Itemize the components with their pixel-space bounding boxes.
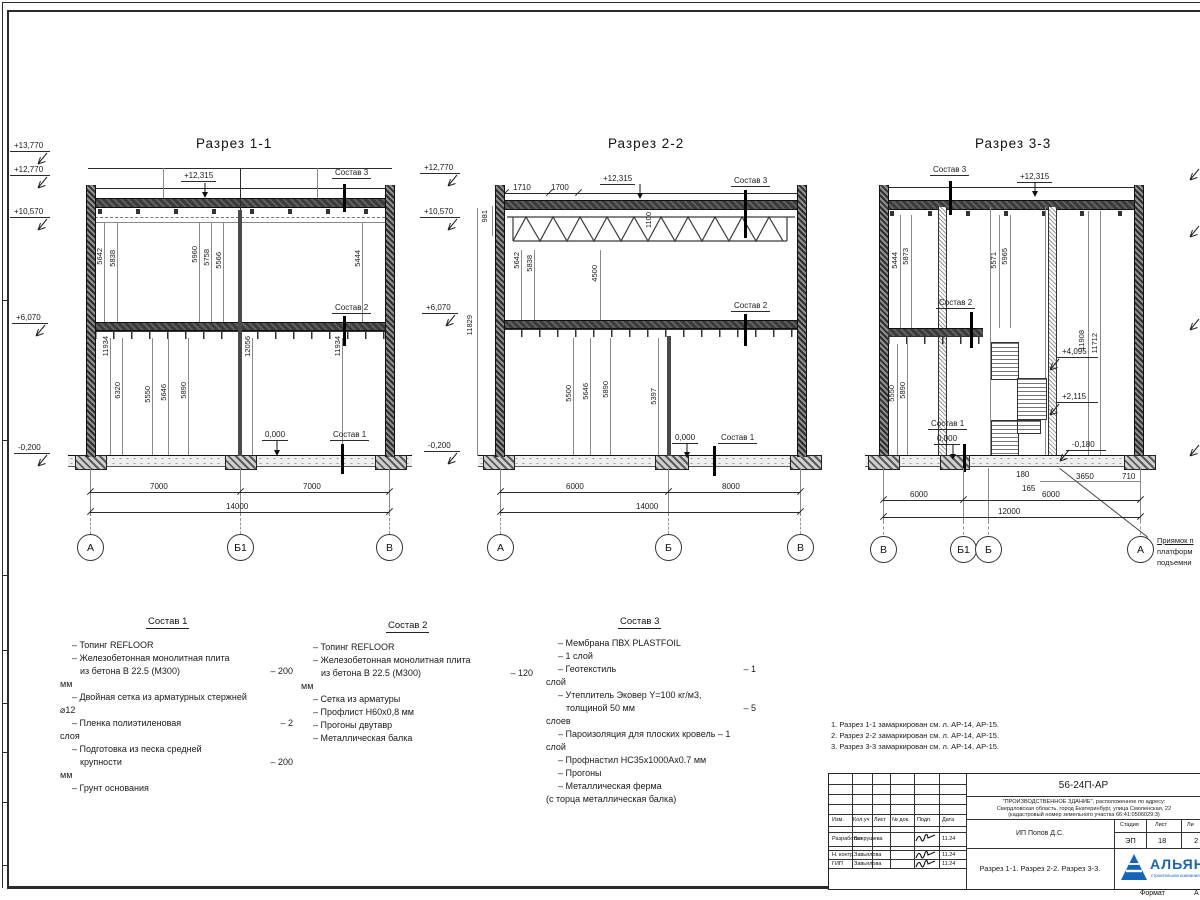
binding-tick [2, 752, 8, 753]
sostav3-callout: Состав 3 [332, 168, 371, 179]
down-arrow-icon [635, 184, 645, 200]
item-text: слой [546, 742, 566, 755]
sostav1-list: – Топинг REFLOOR – Железобетонная моноли… [60, 640, 293, 796]
footing [868, 455, 900, 470]
binding-tick [2, 703, 8, 704]
item-value: – 200 [270, 757, 293, 770]
dim-label: 5444 [890, 252, 899, 269]
ext-line [1140, 468, 1141, 521]
ext-line [988, 468, 989, 521]
item-text: – Железобетонная монолитная плита [301, 655, 471, 668]
dim-label: 1100 [644, 212, 653, 228]
grid-axis-line [963, 521, 964, 535]
dim-label: 5646 [581, 383, 590, 400]
dim-label: 14000 [226, 502, 248, 511]
level-mark: +4,095 [1062, 347, 1087, 356]
sostav3-tick [343, 184, 346, 212]
item-text: крупности [60, 757, 122, 770]
tb-row-date: 11.24 [942, 861, 955, 867]
binding-tick [2, 802, 8, 803]
dim-line [117, 222, 118, 322]
pit-note-line: подъемни [1157, 558, 1192, 567]
down-arrow-icon [272, 441, 282, 457]
dim-label: 6000 [566, 482, 584, 491]
sostav3-callout: Состав 3 [731, 176, 770, 187]
elevation-arrow-icon [444, 174, 459, 188]
middle-column [238, 210, 242, 456]
list-item: мм [60, 679, 293, 692]
dim-label: 3650 [1076, 472, 1094, 481]
note-line: 2. Разрез 2-2 замаркирован см. л. АР-14,… [831, 731, 999, 740]
grid-axis-line [240, 518, 241, 534]
tb-row-line [829, 826, 966, 827]
floor-beams [503, 329, 797, 337]
dim-label: 5571 [989, 252, 998, 269]
grid-axis-line [800, 518, 801, 534]
grid-axis-line [389, 518, 390, 534]
sostav1-tick [713, 446, 716, 476]
dim-label: 5758 [202, 249, 211, 266]
grid-bubble: А [1127, 536, 1154, 563]
list-item: ⌀12 [60, 705, 293, 718]
elevation-label: +12,770 [14, 165, 43, 174]
sostav2-title: Состав 2 [386, 620, 429, 633]
dim-line [534, 250, 535, 320]
elevation-arrow-icon [1056, 449, 1071, 463]
grid-label: В [880, 544, 887, 556]
tb-row-name: Вахрушева [854, 836, 883, 842]
roof-purlins [890, 211, 1133, 216]
item-text: из бетона В 22.5 (М300) [60, 666, 180, 679]
dim-line [610, 338, 611, 455]
grid-bubble: Б [975, 536, 1002, 563]
format-label: Формат [1140, 890, 1165, 897]
tb-row-line [829, 859, 966, 860]
level-mark: +2,115 [1062, 392, 1086, 401]
tb-row-line [829, 868, 966, 869]
item-text: – Двойная сетка из арматурных стержней [60, 692, 247, 705]
item-text: – Топинг REFLOOR [301, 642, 394, 655]
sostav3-tick [949, 181, 952, 215]
elevation-label: +13,770 [14, 141, 43, 150]
grid-bubble: В [376, 534, 403, 561]
sostav1-callout: Состав 1 [928, 419, 967, 430]
list-item: – Железобетонная монолитная плита [60, 653, 293, 666]
item-text: – Профнастил НС35х1000Ах0.7 мм [546, 755, 706, 768]
dim-line [897, 344, 898, 455]
item-text: – Пароизоляция для плоских кровель – 1 [546, 729, 730, 742]
tb-col-line [1181, 819, 1182, 848]
elevation-label: -0,200 [428, 441, 451, 450]
section2-title: Разрез 2-2 [608, 136, 684, 151]
zero-level-callout: 0,000 [262, 430, 288, 441]
outer-border-left [2, 2, 3, 888]
item-value: – 1 [743, 664, 756, 677]
dim-label: 11712 [1090, 333, 1099, 353]
column [1134, 185, 1144, 457]
tb-row-line [829, 850, 966, 851]
level-bar [1056, 402, 1098, 403]
list-item: – Грунт основания [60, 783, 293, 796]
sheet-label: Лист [1155, 822, 1167, 828]
elevation-arrow-icon [1186, 318, 1200, 332]
list-item: слоя [60, 731, 293, 744]
list-item: из бетона В 22.5 (М300)– 120 [301, 668, 533, 681]
tb-col-line [939, 774, 940, 868]
list-item: – Двойная сетка из арматурных стержней [60, 692, 293, 705]
sostav3-tick [744, 190, 747, 238]
list-item: – Геотекстиль– 1 [546, 664, 756, 677]
item-value: – 200 [270, 666, 293, 679]
tb-row-date: 11.24 [942, 852, 955, 858]
dim-label: 5838 [108, 250, 117, 267]
dim-label: 5890 [601, 381, 610, 398]
format-value: А [1194, 890, 1199, 897]
dim-label: 6320 [113, 382, 122, 399]
elevation-arrow-icon [1186, 168, 1200, 182]
frame-left [7, 10, 9, 888]
stair-flight [991, 420, 1019, 458]
list-item: слой [546, 677, 756, 690]
doc-number: 56-24П-АР [966, 776, 1200, 794]
dim-line [199, 222, 200, 322]
elevation-label: -0,200 [18, 443, 41, 452]
tb-row-line [829, 804, 966, 805]
grid-axis-line [988, 521, 989, 535]
list-item: – Подготовка из песка средней [60, 744, 293, 757]
elevation-label: +10,570 [424, 207, 453, 216]
stair-wall [990, 207, 991, 455]
ground-slab [865, 455, 1155, 467]
sostav1-callout: Состав 1 [718, 433, 757, 444]
sostav3-list: – Мембрана ПВХ PLASTFOIL – 1 слой – Геот… [546, 638, 756, 807]
stair-flight [991, 342, 1019, 380]
item-text: – Мембрана ПВХ PLASTFOIL [546, 638, 681, 651]
column [495, 185, 505, 457]
sostav3-callout: Состав 3 [930, 165, 969, 176]
elevation-arrow-icon [34, 176, 49, 190]
sostav2-tick [744, 314, 747, 346]
elevation-arrow-icon [444, 218, 459, 232]
dim-label: 5550 [143, 386, 152, 403]
item-value: – 5 [743, 703, 756, 716]
grid-label: Б [985, 544, 992, 556]
stage-label: Стадия [1120, 822, 1139, 828]
dim-label: 11934 [101, 336, 110, 356]
roof-elevation-callout: +12,315 [181, 171, 216, 182]
dim-label: 5550 [887, 385, 896, 402]
level-bar [1056, 357, 1098, 358]
dim-line [999, 215, 1000, 328]
list-item: – Металлическая ферма [546, 781, 756, 794]
dim-label: 710 [1122, 472, 1135, 481]
dim-label: 165 [1022, 484, 1035, 493]
binding-tick [2, 300, 8, 301]
down-arrow-icon [200, 183, 210, 199]
grid-bubble: Б1 [227, 534, 254, 561]
item-text: из бетона В 22.5 (М300) [301, 668, 421, 681]
sheets-value: 2 [1194, 836, 1198, 845]
footing [375, 455, 407, 470]
elevation-arrow-icon [32, 324, 47, 338]
tb-row-line [829, 784, 966, 785]
tb-row-line [1114, 832, 1200, 833]
ext-line [883, 468, 884, 521]
dim-label: 5965 [1000, 248, 1009, 265]
dim-label: 7000 [150, 482, 168, 491]
stair-landing [1017, 378, 1047, 420]
grid-bubble: В [870, 536, 897, 563]
dim-line [883, 500, 1140, 501]
parapet-line [888, 187, 1135, 188]
list-item: – Прогоны двутавр [301, 720, 533, 733]
ext-line [963, 468, 964, 521]
signature [915, 858, 937, 870]
elevation-arrow-icon [34, 218, 49, 232]
list-item: из бетона В 22.5 (М300)– 200 [60, 666, 293, 679]
grid-label: Б1 [957, 544, 970, 556]
tb-header-col: № док. [892, 817, 910, 823]
dim-label: 8000 [722, 482, 740, 491]
middle-column [667, 336, 671, 456]
parapet-divider [317, 168, 318, 198]
tb-row-line [829, 814, 966, 815]
dim-label: 5960 [190, 246, 199, 263]
elevation-arrow-icon [1046, 358, 1061, 372]
dim-label: 5873 [901, 248, 910, 265]
dim-label: 1700 [551, 183, 569, 192]
ground-slab [478, 455, 822, 467]
dim-label: 5444 [353, 250, 362, 267]
tb-row-name: Завьялова [854, 852, 881, 858]
dim-label: 5838 [525, 255, 534, 272]
elevation-label: +6,070 [426, 303, 451, 312]
item-text: – Металлическая балка [301, 733, 412, 746]
grid-axis-line [1140, 521, 1141, 535]
middle-column-line [240, 168, 241, 210]
down-arrow-icon [682, 443, 692, 459]
grid-bubble: Б [655, 534, 682, 561]
tb-header-col: Изм. [832, 817, 844, 823]
elevation-label: +12,770 [424, 163, 453, 172]
sostav1-title: Состав 1 [146, 616, 189, 629]
dim-line [600, 250, 601, 320]
dim-line [477, 208, 478, 456]
elevation-arrow-icon [34, 152, 49, 166]
dim-line [521, 250, 522, 320]
grid-label: А [1137, 544, 1144, 556]
elevation-arrow-icon [1186, 444, 1200, 458]
pit-note-line: Приямок п [1157, 536, 1194, 545]
dim-label: 5397 [649, 388, 658, 405]
list-item: слой [546, 742, 756, 755]
list-item: слоев [546, 716, 756, 729]
dim-line [907, 344, 908, 455]
grid-label: Б1 [234, 542, 247, 554]
dim-label: 180 [1016, 470, 1029, 479]
item-text: (с торца металлическая балка) [546, 794, 676, 807]
tb-header-col: Дата [942, 817, 954, 823]
grid-label: А [497, 542, 504, 554]
grid-label: А [87, 542, 94, 554]
grid-label: В [797, 542, 804, 554]
dim-label: 981 [480, 210, 489, 223]
sostav1-callout: Состав 1 [330, 430, 369, 441]
list-item: – Топинг REFLOOR [301, 642, 533, 655]
list-item: мм [60, 770, 293, 783]
item-text: – Подготовка из песка средней [60, 744, 202, 757]
list-item: – 1 слой [546, 651, 756, 664]
project-description: "ПРОИЗВОДСТВЕННОЕ ЗДАНИЕ", расположенное… [969, 799, 1199, 819]
item-value: – 120 [510, 668, 533, 681]
item-text: – Топинг REFLOOR [60, 640, 153, 653]
dim-label: 5500 [564, 385, 573, 402]
signature [915, 832, 937, 844]
item-text: слоев [546, 716, 571, 729]
dim-line [104, 222, 105, 322]
drawing-sheet: Разрез 1-1 +13,770 +12,770 +10,570 +6,07… [0, 0, 1200, 900]
elevation-arrow-icon [1186, 225, 1200, 239]
dim-label: 5890 [179, 382, 188, 399]
grid-label: Б [665, 542, 672, 554]
roof-slab [503, 200, 797, 210]
item-text: – Утеплитель Эковер Y=100 кг/м3, [546, 690, 701, 703]
item-text: – Сетка из арматуры [301, 694, 400, 707]
item-text: – Геотекстиль [546, 664, 616, 677]
project-line: "ПРОИЗВОДСТВЕННОЕ ЗДАНИЕ", расположенное… [969, 799, 1199, 806]
dim-line [211, 222, 212, 322]
item-text: мм [60, 679, 72, 692]
item-text: ⌀12 [60, 705, 75, 718]
footing [483, 455, 515, 470]
binding-tick [2, 650, 8, 651]
sostav2-tick [343, 316, 346, 346]
section3-title: Разрез 3-3 [975, 136, 1051, 151]
item-text: – Прогоны [546, 768, 602, 781]
binding-tick [2, 440, 8, 441]
item-text: – Прогоны двутавр [301, 720, 392, 733]
grid-axis-line [668, 518, 669, 534]
footing [225, 455, 257, 470]
dim-label: 7000 [303, 482, 321, 491]
list-item: крупности– 200 [60, 757, 293, 770]
sheets-label: Ли [1187, 822, 1194, 828]
grid-label: В [386, 542, 393, 554]
grid-axis-line [883, 521, 884, 535]
list-item: – Железобетонная монолитная плита [301, 655, 533, 668]
level-mark: -0,180 [1072, 440, 1095, 449]
dim-line [122, 338, 123, 455]
elevation-label: +10,570 [14, 207, 43, 216]
binding-tick [2, 865, 8, 866]
dim-line [252, 338, 253, 455]
roof-slab [888, 200, 1135, 210]
list-item: – Мембрана ПВХ PLASTFOIL [546, 638, 756, 651]
elevation-arrow-icon [444, 452, 459, 466]
stage-value: ЭП [1125, 836, 1136, 845]
tb-row-line [829, 832, 966, 833]
outer-border-top [2, 2, 1200, 3]
pit-note-line: платформ [1157, 547, 1193, 556]
company-logo-icon [1121, 854, 1147, 880]
down-arrow-icon [948, 445, 958, 461]
column [879, 185, 889, 457]
item-text: – Грунт основания [60, 783, 149, 796]
list-item: – Металлическая балка [301, 733, 533, 746]
tb-col-line [890, 774, 891, 868]
dim-line [110, 338, 111, 455]
dim-line [883, 517, 1140, 518]
dim-label: 6000 [910, 490, 928, 499]
dim-line [152, 338, 153, 455]
dim-label: 12000 [998, 507, 1020, 516]
list-item: (с торца металлическая балка) [546, 794, 756, 807]
item-text: – Металлическая ферма [546, 781, 662, 794]
dim-line [500, 492, 800, 493]
list-item: толщиной 50 мм– 5 [546, 703, 756, 716]
level-bar [1066, 450, 1106, 451]
dim-line [188, 338, 189, 455]
tb-header-col: Кол.уч [853, 817, 870, 823]
item-text: мм [60, 770, 72, 783]
dim-line [911, 215, 912, 328]
dim-line [500, 512, 800, 513]
elevation-arrow-icon [34, 454, 49, 468]
dim-label: 5642 [512, 252, 521, 269]
sostav3-title: Состав 3 [618, 616, 661, 629]
dim-line [658, 338, 659, 455]
concrete-column [1048, 207, 1057, 455]
zero-level-callout: 0,000 [934, 434, 960, 445]
sheet-value: 18 [1158, 836, 1166, 845]
dim-line [590, 338, 591, 455]
item-text: слоя [60, 731, 80, 744]
dim-line [492, 206, 493, 236]
grid-bubble: А [487, 534, 514, 561]
grid-axis-line [500, 518, 501, 534]
list-item: – Пароизоляция для плоских кровель – 1 [546, 729, 756, 742]
roof-elevation-callout: +12,315 [600, 174, 635, 185]
dim-line [1040, 481, 1140, 482]
list-item: – Утеплитель Эковер Y=100 кг/м3, [546, 690, 756, 703]
parapet-divider [163, 168, 164, 198]
tb-row-role: Н. контр. [832, 852, 855, 858]
dim-line [573, 338, 574, 455]
floor-slab [503, 320, 797, 329]
dim-label: 4500 [590, 265, 599, 282]
tb-row-line [966, 819, 1200, 820]
tb-header-col: Подп. [917, 817, 932, 823]
dim-line [900, 215, 901, 328]
footing [790, 455, 822, 470]
company-logo-sub: строительная компания [1151, 873, 1200, 878]
company-logo-text: АЛЬЯН [1150, 856, 1200, 872]
dim-label: 6000 [1042, 490, 1060, 499]
sostav2-callout: Состав 2 [731, 301, 770, 312]
elevation-label: +6,070 [16, 313, 41, 322]
dim-line [1100, 211, 1101, 455]
floor-beams [888, 336, 983, 344]
dim-label: 11934 [333, 336, 342, 356]
grid-axis-line [90, 518, 91, 534]
sostav1-tick [341, 444, 344, 474]
dim-label: 5566 [214, 252, 223, 269]
grid-bubble: А [77, 534, 104, 561]
note-line: 3. Разрез 3-3 замаркирован см. л. АР-14,… [831, 742, 999, 751]
tb-col-line [1146, 819, 1147, 848]
elevation-arrow-icon [1046, 403, 1061, 417]
project-line: (кадастровый номер земельного участка 66… [969, 812, 1199, 819]
